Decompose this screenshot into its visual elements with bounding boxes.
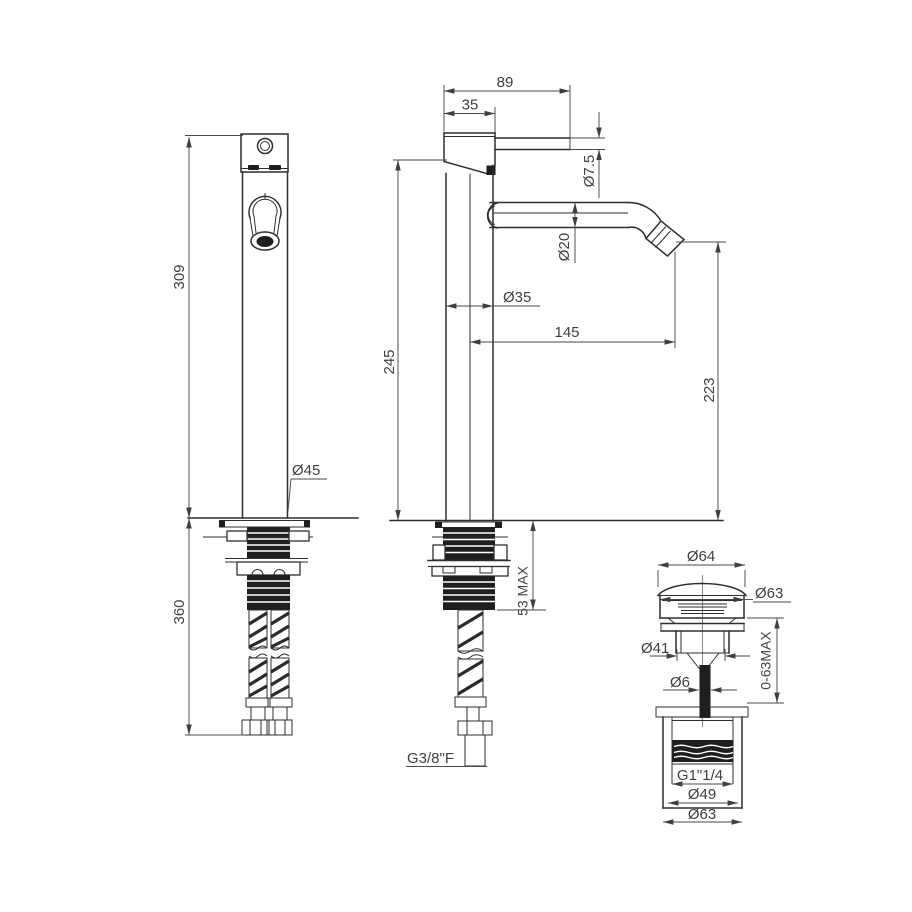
dim-body-63-label: Ø63 (688, 806, 716, 823)
dim-deck-max-label: 53 MAX (515, 565, 531, 615)
dim-hose-360-label: 360 (171, 599, 188, 624)
dim-reach-145-label: 145 (554, 324, 579, 341)
front-mounting-hardware (203, 521, 313, 611)
front-supply-hoses (242, 610, 292, 735)
side-supply-hose (455, 610, 492, 766)
dim-245-label: 245 (381, 349, 398, 374)
faucet-technical-drawing: 309 360 Ø45 (0, 0, 912, 912)
waste-dome-cap (658, 584, 746, 596)
hot-indicator-mark (248, 165, 259, 170)
dim-223-label: 223 (701, 377, 718, 402)
dim-inner-49-label: Ø49 (688, 786, 716, 803)
drain-thread-label: G1"1/4 (677, 767, 723, 784)
dim-spout-diam-label: Ø20 (556, 233, 573, 261)
aerator-face (257, 236, 274, 247)
spout-front (249, 193, 281, 250)
dim-89-label: 89 (497, 74, 514, 91)
dim-35-label: 35 (462, 97, 479, 114)
dim-body-diam-35-label: Ø35 (503, 289, 531, 306)
drain-view: Ø64 Ø63 Ø41 Ø6 0-63MAX G1"1/4 Ø49 Ø63 (641, 548, 791, 823)
side-view: 89 35 Ø7.5 Ø20 Ø35 145 245 223 53 (381, 74, 726, 767)
dim-cap-64-label: Ø64 (687, 548, 715, 565)
handle-top-circle (258, 139, 273, 154)
handle-lever (444, 133, 570, 175)
technical-drawing-page: 309 360 Ø45 (0, 0, 912, 912)
spout-aerator-tip (646, 221, 684, 256)
front-view: 309 360 Ø45 (171, 134, 358, 735)
side-mounting-hardware (428, 522, 510, 610)
dim-lever-diam-label: Ø7.5 (581, 155, 598, 188)
dim-top-63-label: Ø63 (755, 585, 783, 602)
inlet-thread-label: G3/8"F (407, 750, 454, 767)
cold-indicator-mark (269, 165, 281, 170)
dim-pin-6-label: Ø6 (670, 674, 690, 691)
dim-travel-range-label: 0-63MAX (758, 631, 774, 690)
dim-body-diam-45-label: Ø45 (292, 462, 320, 479)
dim-height-309-label: 309 (171, 264, 188, 289)
side-view-dimensions: 89 35 Ø7.5 Ø20 Ø35 145 245 223 53 (381, 74, 726, 767)
dim-neck-41-label: Ø41 (641, 640, 669, 657)
spout-side (488, 202, 684, 256)
